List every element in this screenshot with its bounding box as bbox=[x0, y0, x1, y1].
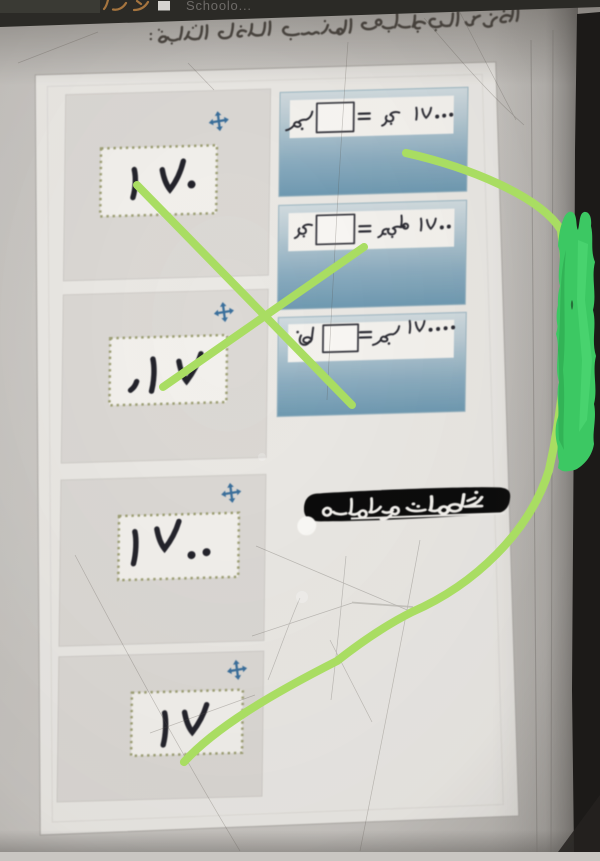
svg-text:Schoolo...: Schoolo... bbox=[186, 0, 252, 13]
